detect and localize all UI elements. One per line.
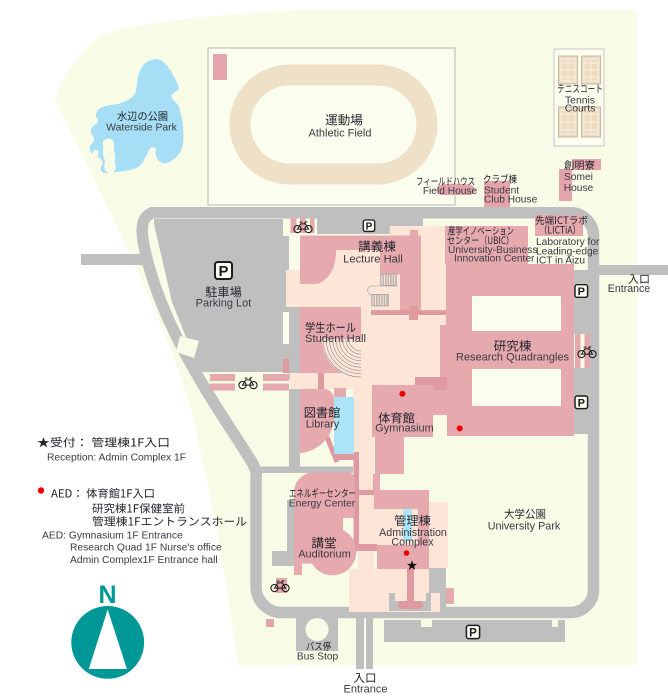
svg-text:Lecture Hall: Lecture Hall [343, 254, 403, 266]
svg-text:Student Hall: Student Hall [305, 333, 366, 345]
svg-text:Waterside Park: Waterside Park [106, 123, 177, 134]
svg-text:Club House: Club House [484, 195, 538, 206]
svg-text:Energy Center: Energy Center [289, 499, 356, 510]
svg-text:Athletic Field: Athletic Field [309, 128, 372, 140]
svg-text:Field House: Field House [423, 186, 478, 197]
svg-text:House: House [564, 183, 594, 194]
svg-text:Bus Stop: Bus Stop [297, 652, 339, 663]
svg-text:Reception: Admin Complex 1F: Reception: Admin Complex 1F [47, 453, 186, 464]
svg-text:Courts: Courts [565, 104, 596, 115]
svg-text:Innovation Center: Innovation Center [454, 254, 535, 265]
svg-text:Admin Complex1F Entrance hall: Admin Complex1F Entrance hall [70, 555, 218, 566]
svg-text:AED: Gymnasium 1F Entrance: AED: Gymnasium 1F Entrance [42, 531, 183, 542]
svg-text:Somei: Somei [564, 172, 593, 183]
svg-text:Entrance: Entrance [608, 283, 651, 295]
svg-text:Library: Library [306, 419, 340, 431]
svg-text:Gymnasium: Gymnasium [375, 423, 434, 435]
svg-text:Research Quadrangles: Research Quadrangles [456, 352, 570, 364]
svg-text:ICT in Aizu: ICT in Aizu [536, 256, 585, 267]
svg-text:N: N [98, 581, 116, 609]
svg-text:Parking Lot: Parking Lot [196, 298, 252, 310]
svg-text:Research Quad 1F Nurse's offic: Research Quad 1F Nurse's office [70, 543, 222, 554]
svg-text:Complex: Complex [391, 537, 434, 549]
svg-text:University Park: University Park [488, 521, 561, 533]
svg-text:Entrance: Entrance [343, 684, 387, 696]
svg-text:Auditorium: Auditorium [298, 549, 351, 561]
